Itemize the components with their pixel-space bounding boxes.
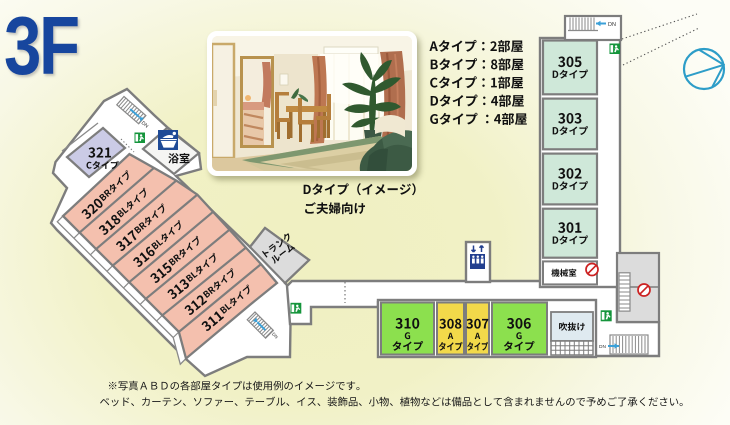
- svg-text:DN: DN: [608, 22, 616, 28]
- svg-text:DN: DN: [599, 344, 606, 350]
